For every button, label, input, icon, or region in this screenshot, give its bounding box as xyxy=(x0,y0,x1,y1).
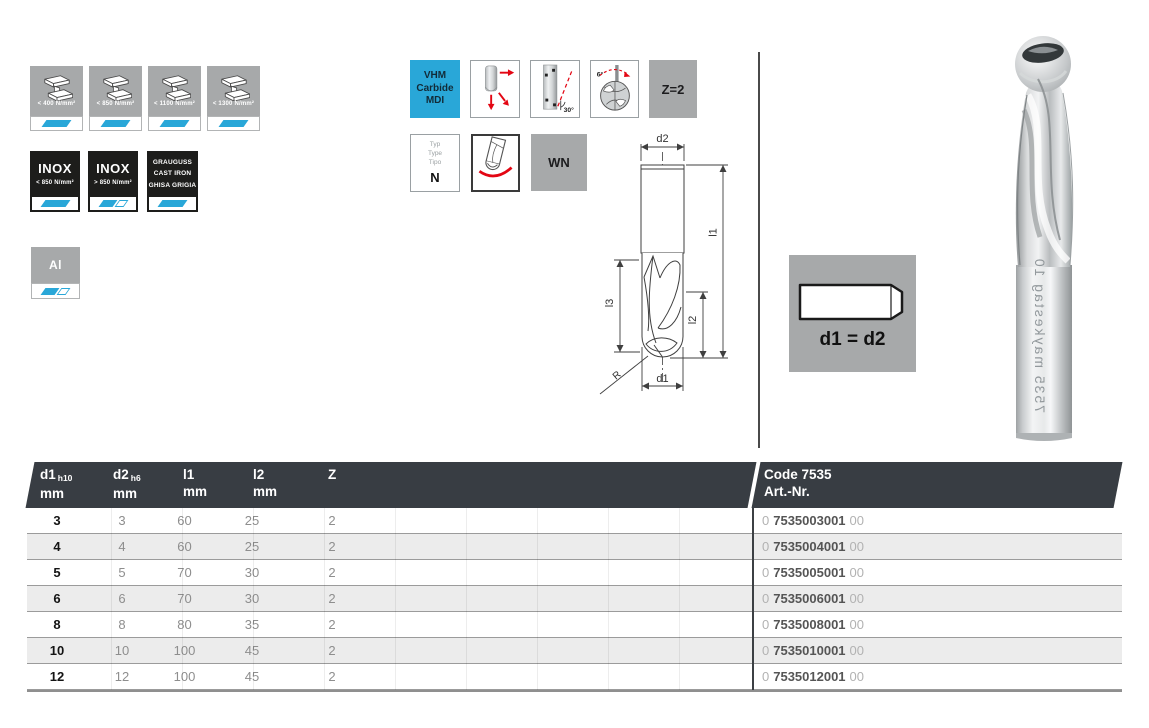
table-row: 3 3 60 25 2 0753500300100 xyxy=(27,508,1122,534)
cell-z: 2 xyxy=(292,565,372,580)
suitability-half-icon xyxy=(98,200,128,207)
catalog-page: < 400 N/mm² < 850 N/mm² < 1100 N/mm² xyxy=(0,0,1149,728)
cell-d2: 5 xyxy=(87,565,157,580)
shank-type-box: d1 = d2 xyxy=(789,255,916,372)
type-label: Typ xyxy=(430,141,440,150)
cell-l1: 70 xyxy=(157,565,212,580)
cell-d2: 12 xyxy=(87,669,157,684)
cell-d2: 4 xyxy=(87,539,157,554)
ball-nose-graphic xyxy=(473,136,518,190)
type-label: Tipo xyxy=(429,159,441,168)
table-body: 3 3 60 25 2 0753500300100 4 4 60 25 2 07… xyxy=(27,508,1122,690)
vhm-line: Carbide xyxy=(416,83,453,96)
plain-shank-graphic xyxy=(797,282,907,322)
cell-d2: 6 xyxy=(87,591,157,606)
cell-l1: 100 xyxy=(157,643,212,658)
suitability-full-icon xyxy=(160,120,190,127)
suitability-strip xyxy=(88,197,138,212)
suitability-full-icon xyxy=(40,200,70,207)
cell-z: 2 xyxy=(292,643,372,658)
cell-d2: 8 xyxy=(87,617,157,632)
material-title: INOX xyxy=(38,162,72,175)
vhm-carbide-badge: VHM Carbide MDI xyxy=(410,60,460,118)
technical-drawing: d2 l1 l2 l3 d1 R xyxy=(580,130,780,405)
cell-l2: 30 xyxy=(212,591,292,606)
suitability-strip xyxy=(89,116,142,131)
material-inox-gt850: INOX > 850 N/mm² xyxy=(88,151,138,212)
cell-l1: 60 xyxy=(157,513,212,528)
suitability-full-icon xyxy=(101,120,131,127)
flute-count-label: Z=2 xyxy=(662,82,685,97)
material-label-line: GHISA GRIGIA xyxy=(149,180,197,191)
cell-l1: 100 xyxy=(157,669,212,684)
material-cast-iron: GRAUGUSS CAST IRON GHISA GRIGIA xyxy=(147,151,198,212)
svg-text:d2: d2 xyxy=(656,133,668,145)
cell-l2: 25 xyxy=(212,513,292,528)
material-steel-1300: < 1300 N/mm² xyxy=(207,66,260,131)
code-header: Code 7535 Art.-Nr. xyxy=(764,466,832,500)
cell-l2: 45 xyxy=(212,643,292,658)
shank-type-label: d1 = d2 xyxy=(789,329,916,351)
cell-artnr: 0753500800100 xyxy=(754,617,1122,632)
cell-artnr: 0753500600100 xyxy=(754,591,1122,606)
cell-d1: 12 xyxy=(27,669,87,684)
helix-angle-graphic: 30° xyxy=(531,61,579,117)
cell-l2: 30 xyxy=(212,565,292,580)
cell-l2: 25 xyxy=(212,539,292,554)
end-view-graphic: 6° xyxy=(591,61,638,117)
svg-text:d1: d1 xyxy=(656,373,668,385)
col-header-z: Z xyxy=(328,466,336,483)
cell-z: 2 xyxy=(292,539,372,554)
table-row: 6 6 70 30 2 0753500600100 xyxy=(27,586,1122,612)
suitability-strip xyxy=(30,116,83,131)
plunge-direction-icon xyxy=(470,60,520,118)
helix-angle-icon: 30° xyxy=(530,60,580,118)
cell-d1: 6 xyxy=(27,591,87,606)
cell-l2: 45 xyxy=(212,669,292,684)
suitability-strip xyxy=(31,283,80,299)
material-label: > 850 N/mm² xyxy=(94,180,132,187)
cell-artnr: 0753500300100 xyxy=(754,513,1122,528)
col-header-d2: d2h6 mm xyxy=(113,466,141,502)
cell-z: 2 xyxy=(292,617,372,632)
material-steel-1100: < 1100 N/mm² xyxy=(148,66,201,131)
product-photo: 7535 maykestag 10 xyxy=(980,15,1110,450)
suitability-strip xyxy=(147,197,198,212)
steel-beam-icon xyxy=(41,74,73,101)
col-header-d1: d1h10 mm xyxy=(40,466,72,502)
table-header-code: Code 7535 Art.-Nr. xyxy=(752,462,1123,508)
laser-etch-text: 7535 maykestag 10 xyxy=(1032,257,1048,413)
cell-d1: 10 xyxy=(27,643,87,658)
section-divider xyxy=(758,52,760,448)
material-label: < 850 N/mm² xyxy=(97,101,135,108)
wn-label: WN xyxy=(548,155,570,170)
cell-l2: 35 xyxy=(212,617,292,632)
material-label-line: CAST IRON xyxy=(154,168,192,179)
table-row: 5 5 70 30 2 0753500500100 xyxy=(27,560,1122,586)
cell-d2: 3 xyxy=(87,513,157,528)
cell-artnr: 0753501200100 xyxy=(754,669,1122,684)
cell-l1: 70 xyxy=(157,591,212,606)
table-row: 4 4 60 25 2 0753500400100 xyxy=(27,534,1122,560)
suitability-strip xyxy=(148,116,201,131)
table-row: 8 8 80 35 2 0753500800100 xyxy=(27,612,1122,638)
type-value: N xyxy=(430,170,439,185)
wn-shank-badge: WN xyxy=(531,134,587,191)
cell-l1: 80 xyxy=(157,617,212,632)
cell-artnr: 0753500400100 xyxy=(754,539,1122,554)
cell-d1: 3 xyxy=(27,513,87,528)
material-steel-850: < 850 N/mm² xyxy=(89,66,142,131)
table-row: 10 10 100 45 2 0753501000100 xyxy=(27,638,1122,664)
suitability-strip xyxy=(207,116,260,131)
material-label-line: GRAUGUSS xyxy=(153,157,192,168)
cell-artnr: 0753500500100 xyxy=(754,565,1122,580)
table-body-wrap: 3 3 60 25 2 0753500300100 4 4 60 25 2 07… xyxy=(27,508,1122,692)
svg-text:l3: l3 xyxy=(604,299,616,308)
cell-artnr: 0753501000100 xyxy=(754,643,1122,658)
table-header: d1h10 mm d2h6 mm l1 mm l2 mm Z xyxy=(26,462,1123,508)
svg-text:30°: 30° xyxy=(564,106,574,114)
suitability-half-icon xyxy=(41,288,71,295)
material-label: < 400 N/mm² xyxy=(38,101,76,108)
material-label: < 1300 N/mm² xyxy=(213,101,254,108)
suitability-full-icon xyxy=(219,120,249,127)
steel-beam-icon xyxy=(159,74,191,101)
flute-count-badge: Z=2 xyxy=(649,60,697,118)
material-steel-400: < 400 N/mm² xyxy=(30,66,83,131)
material-title: INOX xyxy=(96,162,130,175)
suitability-strip xyxy=(30,197,80,212)
cell-d2: 10 xyxy=(87,643,157,658)
table-row: 12 12 100 45 2 0753501200100 xyxy=(27,664,1122,690)
type-n-badge: Typ Type Tipo N xyxy=(410,134,460,192)
vhm-line: MDI xyxy=(426,95,444,108)
cell-z: 2 xyxy=(292,513,372,528)
col-header-l2: l2 mm xyxy=(253,466,277,500)
material-aluminium: Al xyxy=(31,247,80,299)
cell-z: 2 xyxy=(292,669,372,684)
svg-text:l2: l2 xyxy=(687,316,699,325)
steel-beam-icon xyxy=(100,74,132,101)
col-header-l1: l1 mm xyxy=(183,466,207,500)
steel-beam-icon xyxy=(218,74,250,101)
material-label: < 850 N/mm² xyxy=(36,180,74,187)
table-header-left: d1h10 mm d2h6 mm l1 mm l2 mm Z xyxy=(26,462,757,508)
svg-text:6°: 6° xyxy=(597,71,604,79)
cell-l1: 60 xyxy=(157,539,212,554)
material-label: < 1100 N/mm² xyxy=(154,101,195,108)
cell-d1: 8 xyxy=(27,617,87,632)
vhm-line: VHM xyxy=(424,70,446,83)
suitability-full-icon xyxy=(42,120,72,127)
plunge-direction-graphic xyxy=(471,61,519,117)
ball-nose-profile-icon xyxy=(471,134,520,192)
svg-text:R: R xyxy=(611,369,624,382)
suitability-full-icon xyxy=(158,200,188,207)
cell-z: 2 xyxy=(292,591,372,606)
svg-text:l1: l1 xyxy=(708,228,720,237)
type-label: Type xyxy=(428,150,442,159)
cell-d1: 4 xyxy=(27,539,87,554)
cell-d1: 5 xyxy=(27,565,87,580)
end-view-angle-icon: 6° xyxy=(590,60,639,118)
material-title: Al xyxy=(49,259,62,271)
material-inox-lt850: INOX < 850 N/mm² xyxy=(30,151,80,212)
